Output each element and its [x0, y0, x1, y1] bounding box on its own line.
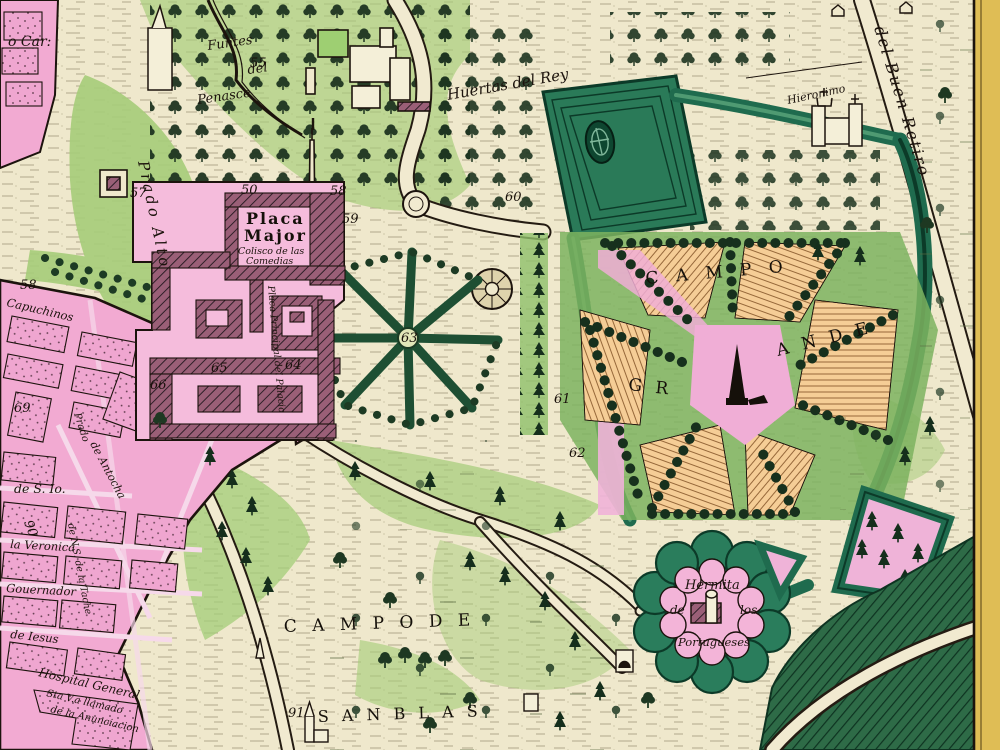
num-69: 69	[14, 401, 31, 416]
num-59: 59	[342, 212, 359, 227]
num-91: 91	[288, 706, 305, 721]
num-64: 64	[285, 358, 302, 373]
num-55: 55	[250, 56, 267, 71]
fort-57	[100, 170, 127, 197]
label-hermita-2: de	[670, 603, 685, 617]
label-hermita-3: los	[740, 603, 757, 617]
map-canvas: o Car: Funtes del Penasce Huertas del Re…	[0, 0, 1000, 750]
label-hermita-1: Hermita	[684, 578, 740, 593]
num-62: 62	[569, 446, 586, 461]
num-63: 63	[401, 331, 418, 346]
label-o-car: o Car:	[8, 34, 51, 50]
num-65: 65	[211, 361, 228, 376]
label-de-s-io: de S. Io.	[14, 481, 66, 496]
label-coliseo-2: Comedias	[246, 256, 293, 267]
num-58b: 58	[20, 278, 37, 293]
num-60: 60	[505, 190, 522, 205]
antique-map: o Car: Funtes del Penasce Huertas del Re…	[0, 0, 1000, 750]
num-58: 58	[330, 184, 347, 199]
map-margin	[974, 0, 1000, 750]
num-50: 50	[241, 183, 258, 198]
num-61: 61	[554, 392, 571, 407]
label-hermita-4: Portugueses	[677, 635, 750, 649]
num-66: 66	[150, 378, 167, 393]
label-placa-major-2: Major	[244, 226, 307, 245]
num-57: 57	[130, 186, 147, 201]
